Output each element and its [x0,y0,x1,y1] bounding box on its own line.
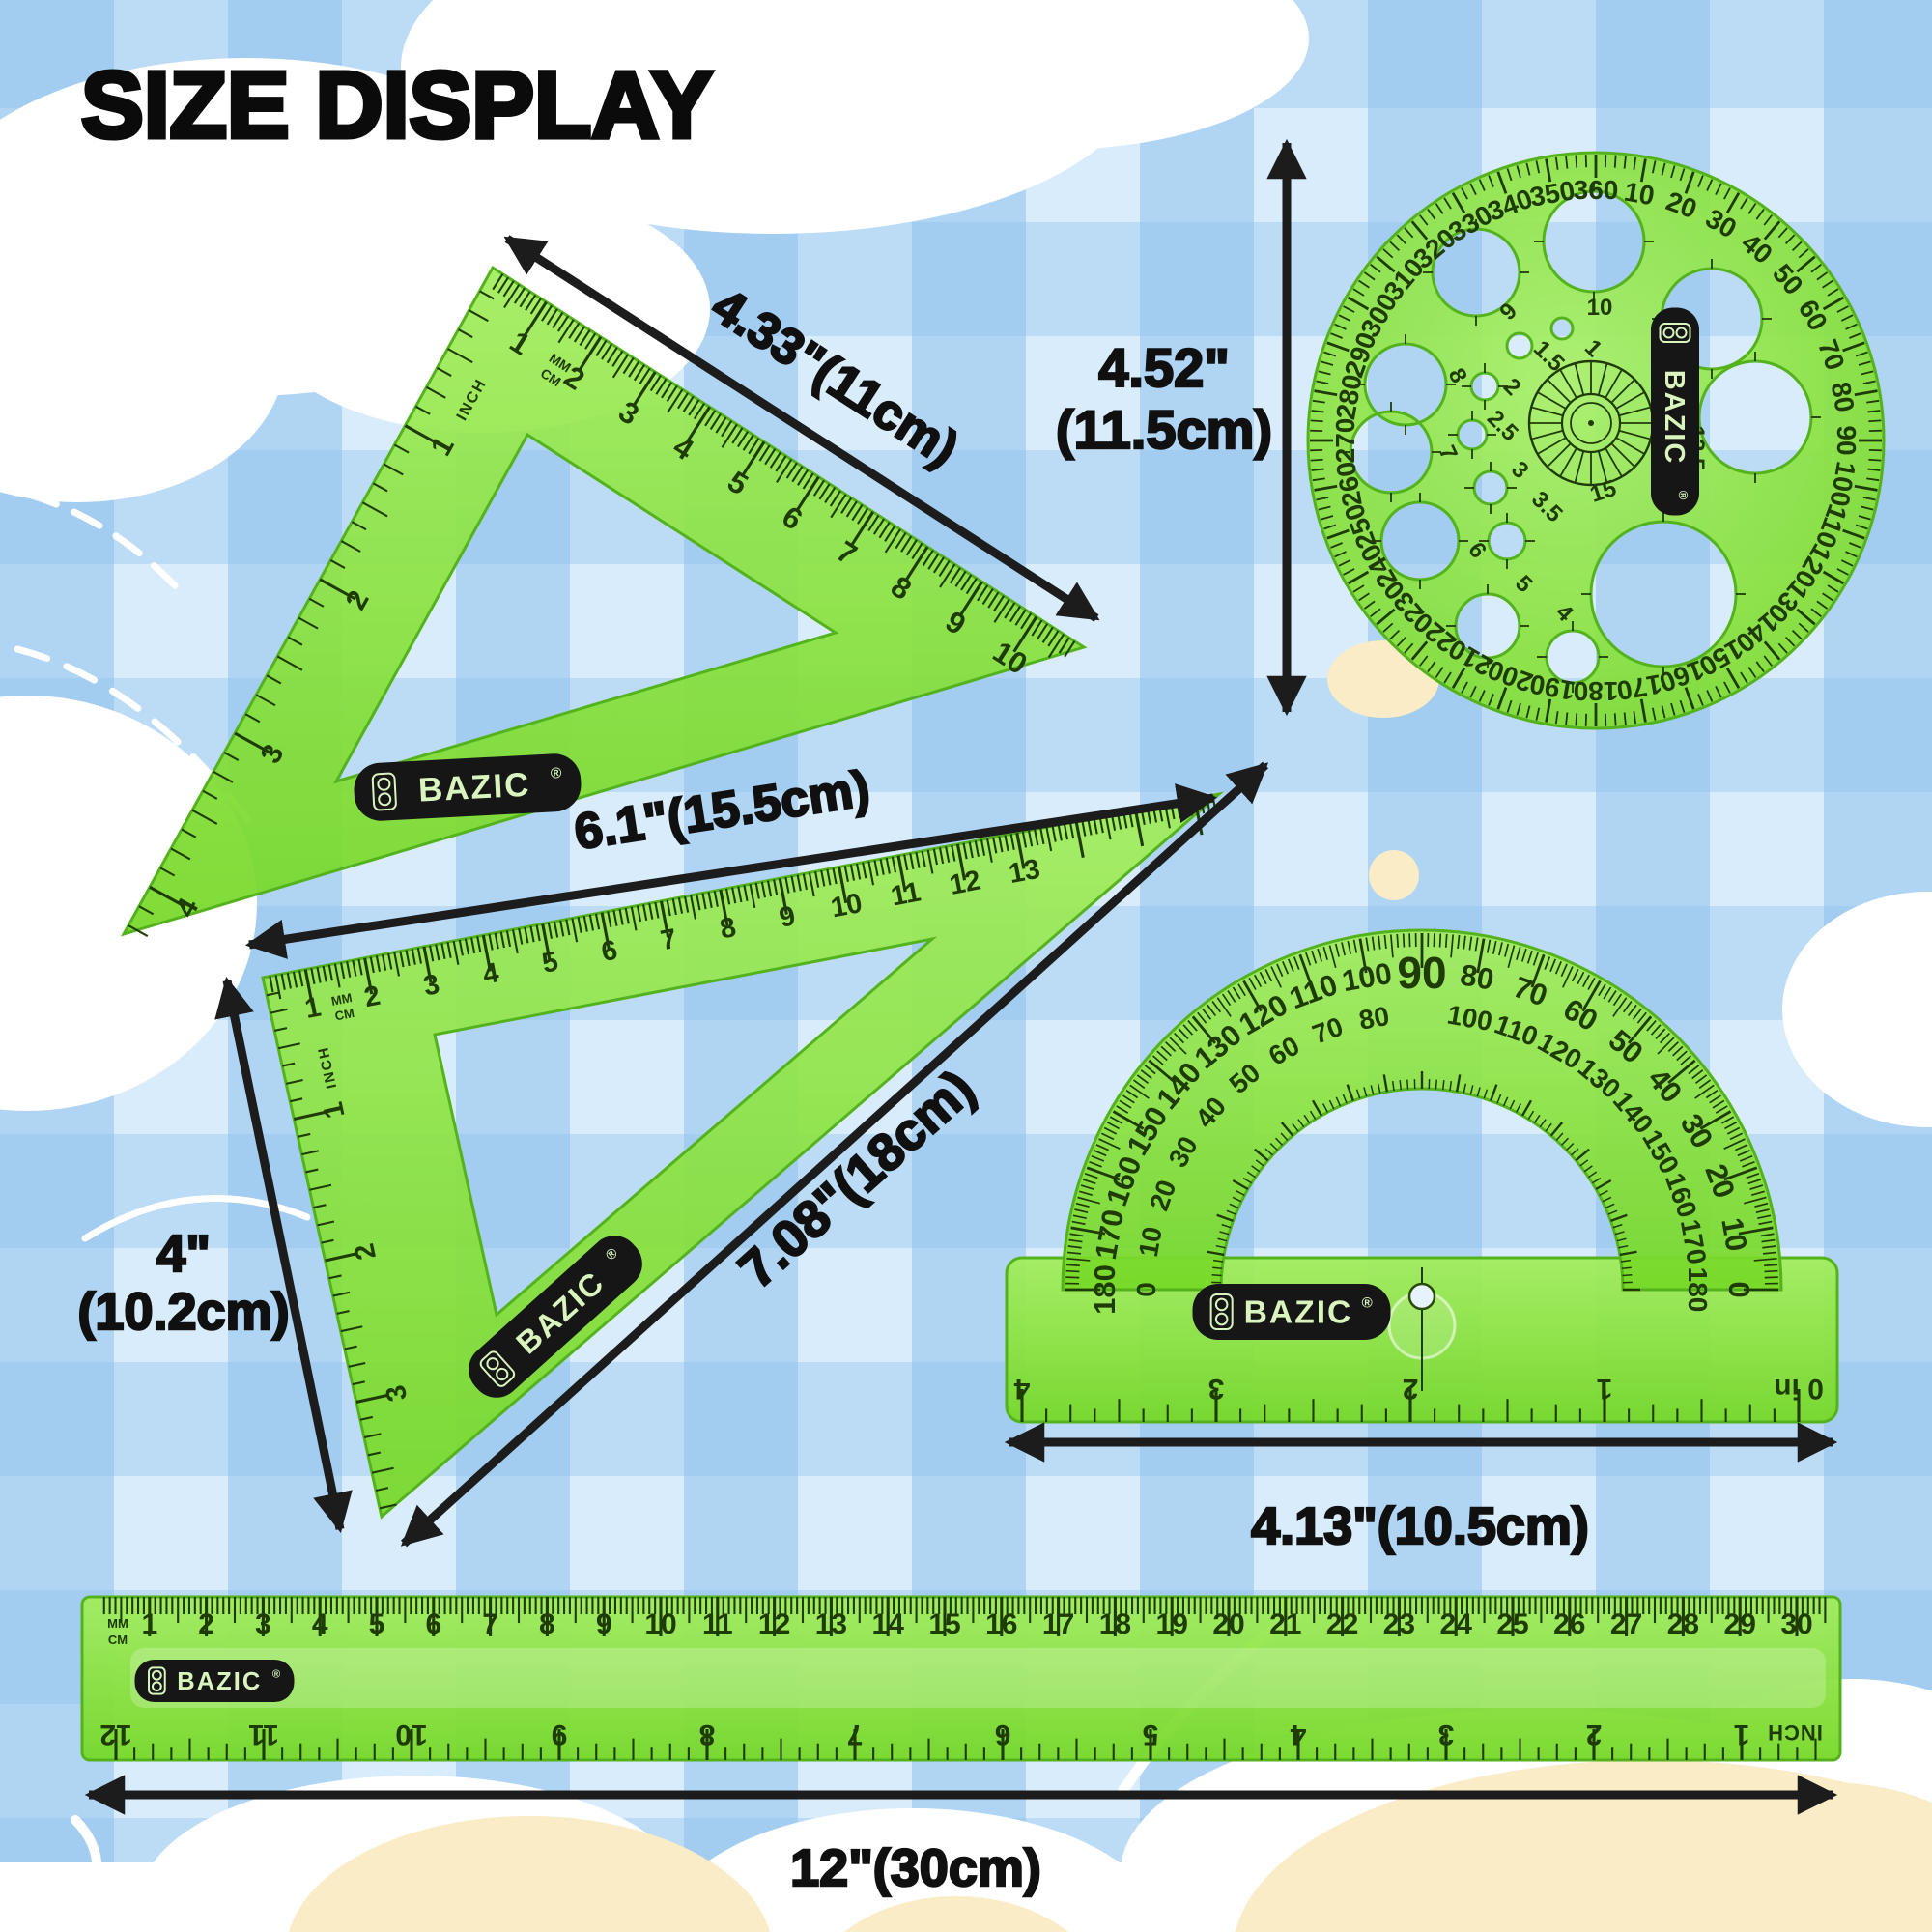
svg-text:6: 6 [425,1608,441,1640]
svg-text:11: 11 [702,1608,733,1640]
svg-text:12: 12 [947,865,983,901]
svg-text:20: 20 [1212,1608,1244,1640]
svg-text:21: 21 [1269,1608,1301,1640]
measurement-label-triangle-large-left1: 4" [156,1225,211,1283]
svg-text:10: 10 [395,1719,427,1750]
svg-text:0 in: 0 in [1774,1373,1824,1405]
dashed-swish [29,495,185,597]
svg-text:3: 3 [1438,1719,1455,1750]
svg-text:4: 4 [1290,1719,1306,1750]
svg-text:23: 23 [1383,1608,1415,1640]
bazic-logo: BAZIC® [353,753,582,822]
svg-text:28: 28 [1667,1608,1699,1640]
svg-text:10: 10 [1587,295,1613,321]
svg-text:®: ® [550,765,562,782]
svg-text:13: 13 [815,1608,847,1640]
svg-text:27: 27 [1610,1608,1642,1640]
svg-text:90: 90 [1832,425,1861,455]
svg-text:29: 29 [1724,1608,1756,1640]
svg-text:MM: MM [107,1616,128,1631]
svg-text:10: 10 [828,888,865,924]
svg-text:4: 4 [1013,1373,1030,1405]
svg-text:8: 8 [539,1608,555,1640]
svg-text:3: 3 [1208,1373,1225,1405]
svg-text:25: 25 [1496,1608,1528,1640]
svg-text:12: 12 [99,1719,131,1750]
svg-text:CM: CM [108,1633,128,1647]
svg-text:BAZIC: BAZIC [1659,370,1690,466]
svg-text:10: 10 [1133,1224,1168,1259]
protractor: 1008011070120601305014040150301602017010… [1007,930,1837,1422]
svg-text:2: 2 [1403,1373,1419,1405]
infographic-canvas: 12345678910MMCM1234INCHBAZIC® 1020304050… [0,0,1932,1932]
svg-text:0: 0 [1131,1282,1161,1297]
svg-text:®: ® [1676,491,1690,500]
svg-text:15: 15 [928,1608,960,1640]
svg-text:180: 180 [1088,1264,1122,1315]
svg-text:4: 4 [312,1608,328,1640]
ruler-12inch: 1234567891011121314151617181920212223242… [82,1597,1840,1760]
svg-text:260: 260 [1330,459,1368,508]
svg-text:30: 30 [1780,1608,1812,1640]
svg-text:12: 12 [758,1608,790,1640]
svg-text:22: 22 [1326,1608,1358,1640]
circle-template: 1020304050607080901001101201301401501601… [1308,153,1884,728]
svg-text:2: 2 [198,1608,214,1640]
svg-text:7: 7 [847,1719,864,1750]
svg-text:350: 350 [1527,175,1577,213]
svg-text:360: 360 [1574,175,1619,205]
svg-text:1: 1 [1734,1719,1750,1750]
measurement-label-ruler: 12"(30cm) [790,1839,1041,1897]
svg-text:®: ® [272,1668,281,1680]
svg-text:26: 26 [1553,1608,1585,1640]
svg-text:BAZIC: BAZIC [177,1668,262,1695]
svg-text:11: 11 [889,876,923,912]
svg-text:1: 1 [141,1608,157,1640]
svg-text:24: 24 [1440,1608,1473,1640]
svg-text:10: 10 [1715,1215,1753,1254]
svg-text:180: 180 [1683,1267,1713,1313]
page-title: SIZE DISPLAY [81,52,713,157]
svg-text:11: 11 [248,1719,279,1750]
bazic-logo: BAZIC® [1193,1284,1391,1340]
svg-text:INCH: INCH [1767,1720,1823,1745]
measurement-label-triangle-large-left2: (10.2cm) [77,1283,289,1341]
svg-text:10: 10 [644,1608,676,1640]
svg-text:14: 14 [872,1608,905,1640]
svg-text:6: 6 [995,1719,1011,1750]
bazic-logo: BAZIC® [1651,308,1699,516]
cream-blob [1369,850,1419,900]
svg-text:80: 80 [1356,1001,1391,1036]
svg-text:9: 9 [596,1608,612,1640]
svg-text:19: 19 [1156,1608,1188,1640]
svg-text:3: 3 [255,1608,271,1640]
svg-text:BAZIC: BAZIC [417,766,531,810]
svg-text:5: 5 [1143,1719,1159,1750]
svg-text:2: 2 [1586,1719,1603,1750]
svg-text:9: 9 [552,1719,568,1750]
svg-text:8: 8 [699,1719,716,1750]
measurement-label-circle-line2: (11.5cm) [1056,399,1272,460]
bazic-logo: BAZIC® [135,1660,295,1702]
svg-text:®: ® [1362,1294,1373,1311]
svg-text:10: 10 [1622,176,1657,211]
svg-text:7: 7 [482,1608,498,1640]
svg-text:1: 1 [1597,1373,1613,1405]
svg-text:13: 13 [1007,854,1043,891]
svg-text:18: 18 [1099,1608,1131,1640]
measurement-label-circle-line1: 4.52" [1098,337,1230,398]
svg-text:270: 270 [1330,418,1360,464]
measurement-label-protractor: 4.13"(10.5cm) [1251,1497,1589,1555]
svg-text:80: 80 [1826,380,1861,414]
svg-text:180: 180 [1574,676,1619,706]
svg-text:5: 5 [369,1608,385,1640]
cloud [1782,892,1932,1127]
svg-text:0: 0 [1722,1281,1756,1297]
svg-text:16: 16 [985,1608,1017,1640]
svg-text:90: 90 [1397,948,1446,998]
svg-text:BAZIC: BAZIC [1244,1295,1353,1331]
svg-text:17: 17 [1042,1608,1074,1640]
svg-text:80: 80 [1458,957,1496,996]
